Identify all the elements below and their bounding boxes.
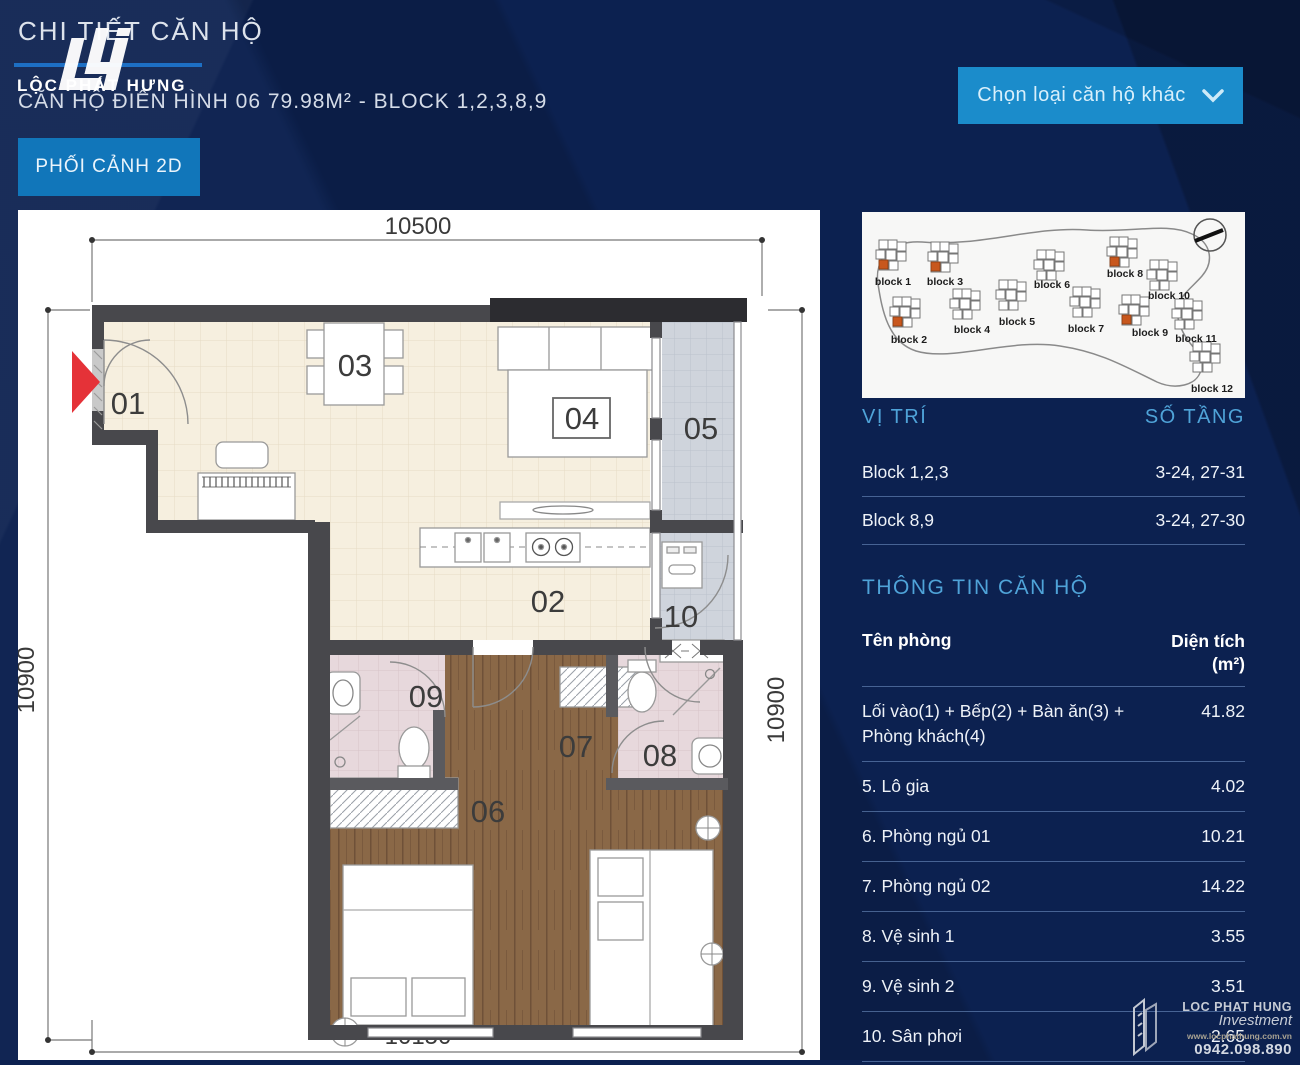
svg-text:block 6: block 6 (1034, 279, 1070, 291)
site-block-map: block 1 block 2 block 3 block 4 block 5 … (862, 212, 1245, 398)
col-area: Diện tích (m²) (1171, 630, 1245, 676)
room-label-02: 02 (531, 584, 565, 619)
table-row: Block 1,2,3 3-24, 27-31 (862, 449, 1245, 497)
info-title: THÔNG TIN CĂN HỘ (862, 576, 1245, 600)
footer-website: www.locphathung.com.vn (1172, 1031, 1292, 1041)
washer (662, 542, 702, 588)
room-name: 9. Vệ sinh 2 (862, 974, 1138, 999)
floors-value: 3-24, 27-30 (1155, 510, 1245, 531)
col-location: VỊ TRÍ (862, 406, 927, 429)
room-name: 7. Phòng ngủ 02 (862, 874, 1138, 899)
svg-text:block 10: block 10 (1148, 290, 1190, 302)
view-2d-button[interactable]: PHỐI CẢNH 2D (18, 138, 200, 196)
room-label-01: 01 (111, 386, 145, 421)
table-row: 6. Phòng ngủ 01 10.21 (862, 812, 1245, 862)
room-area: 41.82 (1201, 699, 1245, 749)
table-row: 8. Vệ sinh 1 3.55 (862, 912, 1245, 962)
bed-06 (331, 865, 473, 1046)
col-floors: SỐ TẦNG (1145, 406, 1245, 429)
chevron-down-icon (1202, 89, 1224, 103)
table-row: 7. Phòng ngủ 02 14.22 (862, 862, 1245, 912)
room-label-10: 10 (664, 599, 698, 634)
table-row: Block 8,9 3-24, 27-30 (862, 497, 1245, 545)
floorplan-drawing: 10500 10900 10900 10150 (18, 210, 820, 1060)
info-table-header: Tên phòng Diện tích (m²) (862, 630, 1245, 687)
dim-right: 10900 (763, 677, 790, 744)
room-label-08: 08 (643, 738, 677, 773)
location-value: Block 8,9 (862, 510, 934, 531)
svg-text:block 2: block 2 (891, 334, 927, 346)
footer-phone: 0942.098.890 (1172, 1041, 1292, 1058)
room-area: 3.55 (1211, 924, 1245, 949)
dim-top: 10500 (385, 213, 452, 240)
dim-left: 10900 (18, 647, 40, 714)
room-label-03: 03 (338, 348, 372, 383)
room-name: Lối vào(1) + Bếp(2) + Bàn ăn(3) + Phòng … (862, 699, 1138, 749)
footer-building-icon (1124, 996, 1166, 1058)
room-name: 6. Phòng ngủ 01 (862, 824, 1138, 849)
choose-unit-label: Chọn loại căn hộ khác (977, 84, 1185, 107)
room-name: 10. Sân phơi (862, 1024, 1138, 1049)
apartment-info-section: THÔNG TIN CĂN HỘ Tên phòng Diện tích (m²… (862, 576, 1245, 1062)
footer-watermark: LOC PHAT HUNG Investment www.locphathung… (1124, 996, 1294, 1058)
location-floors-table: VỊ TRÍ SỐ TẦNG Block 1,2,3 3-24, 27-31 B… (862, 406, 1245, 545)
room-area: 4.02 (1211, 774, 1245, 799)
footer-brand-sub: Investment (1172, 1012, 1292, 1029)
location-value: Block 1,2,3 (862, 462, 949, 483)
choose-unit-dropdown[interactable]: Chọn loại căn hộ khác (958, 67, 1243, 124)
col-area-label: Diện tích (1171, 631, 1245, 651)
svg-text:block 3: block 3 (927, 276, 963, 288)
svg-text:block 12: block 12 (1191, 383, 1233, 395)
brand-logo-text: LỘC PHÁT HƯNG (17, 76, 187, 96)
svg-text:block 11: block 11 (1175, 333, 1217, 345)
floors-value: 3-24, 27-31 (1155, 462, 1245, 483)
room-area: 10.21 (1201, 824, 1245, 849)
room-label-05: 05 (684, 411, 718, 446)
svg-text:block 5: block 5 (999, 316, 1035, 328)
col-area-unit: (m²) (1212, 654, 1245, 674)
room-label-06: 06 (471, 794, 505, 829)
room-label-04: 04 (565, 401, 599, 436)
svg-text:block 4: block 4 (954, 324, 990, 336)
brand-logo-icon (14, 22, 214, 122)
wardrobe-07 (560, 667, 637, 707)
svg-text:block 8: block 8 (1107, 268, 1143, 280)
room-label-07: 07 (559, 729, 593, 764)
svg-text:block 7: block 7 (1068, 323, 1104, 335)
table-row: Lối vào(1) + Bếp(2) + Bàn ăn(3) + Phòng … (862, 687, 1245, 762)
col-room-name: Tên phòng (862, 630, 951, 676)
svg-text:block 9: block 9 (1132, 327, 1168, 339)
room-name: 5. Lô gia (862, 774, 1138, 799)
table-row: 5. Lô gia 4.02 (862, 762, 1245, 812)
floorplan-canvas: 10500 10900 10900 10150 (18, 210, 820, 1060)
svg-text:block 1: block 1 (875, 276, 911, 288)
room-label-09: 09 (409, 679, 443, 714)
room-name: 8. Vệ sinh 1 (862, 924, 1138, 949)
room-area: 14.22 (1201, 874, 1245, 899)
